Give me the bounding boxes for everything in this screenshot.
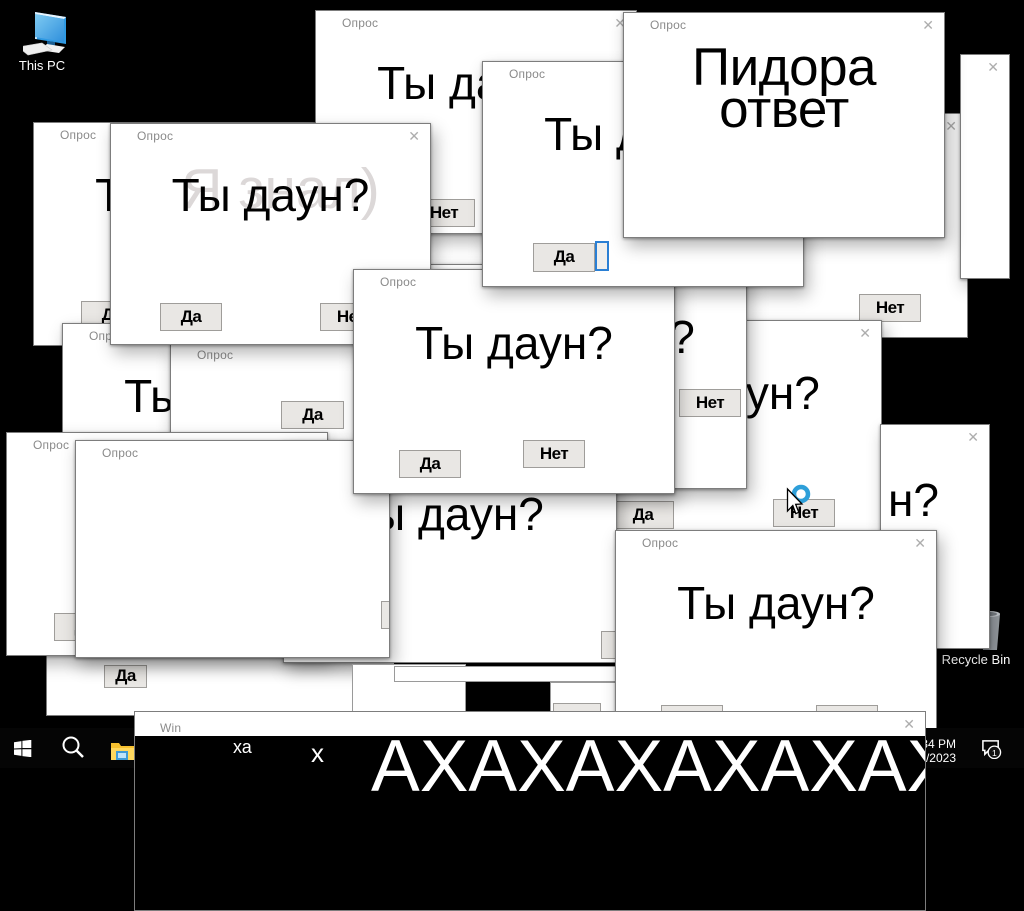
svg-text:1: 1 bbox=[992, 748, 997, 758]
